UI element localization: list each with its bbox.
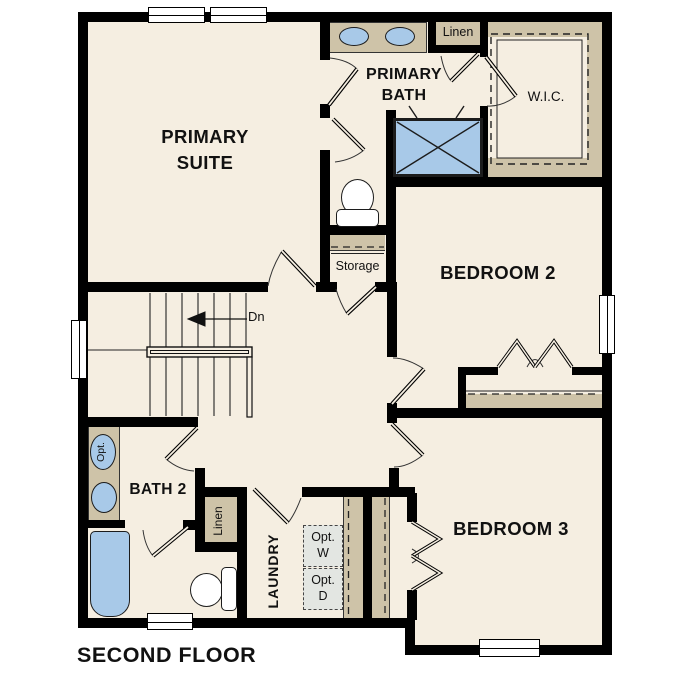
wall-bath2-mid-a: [86, 520, 125, 528]
wall-b2closet-top-a: [458, 367, 498, 375]
label-bath2: BATH 2: [122, 481, 194, 499]
wall-b3closet-right-a: [407, 493, 417, 522]
wall-suite-bottom: [86, 282, 268, 292]
floor-plan: Opt. W Opt. D: [0, 0, 687, 687]
toilet-tank-bath2: [221, 567, 237, 611]
wall-laundry-left: [237, 487, 247, 618]
optional-washer-box: Opt. W: [303, 525, 343, 567]
ext-wall-step: [405, 618, 415, 655]
label-primary-bath: PRIMARY BATH: [344, 64, 464, 106]
wall-b3closet-left: [363, 487, 372, 620]
laundry-counter: [343, 497, 363, 618]
toilet-tank-wc: [336, 209, 379, 227]
label-optional-sink: Opt.: [95, 437, 107, 467]
label-linen-bottom: Linen: [212, 491, 226, 551]
bath2-sink: [91, 482, 117, 513]
label-bedroom2: BEDROOM 2: [408, 262, 588, 283]
bath-sink: [339, 27, 369, 46]
wall-suite-bottom-b: [316, 282, 337, 292]
wall-linen-top-bottom: [428, 45, 488, 53]
wall-wc-left-a: [320, 104, 330, 118]
wall-stairs-bottom: [86, 417, 198, 427]
optional-dryer-box: Opt. D: [303, 568, 343, 610]
window-mullion: [148, 622, 192, 623]
wall-bath2-right: [195, 468, 205, 552]
label-primary-suite: PRIMARY SUITE: [119, 124, 291, 176]
wall-b2closet-top-b: [572, 367, 602, 375]
window-mullion: [79, 321, 80, 378]
wall-suite-bath-upper: [320, 12, 330, 60]
shower: [393, 118, 483, 177]
wall-b3closet-right-b: [407, 590, 417, 620]
page-title: SECOND FLOOR: [77, 643, 317, 668]
label-laundry: LAUNDRY: [265, 521, 281, 621]
storage-shelf: [330, 235, 385, 251]
wall-laundry-top: [302, 487, 415, 497]
label-stairs-dn: Dn: [248, 310, 278, 325]
window-right-bedroom2: [599, 295, 615, 354]
wall-bedroom2-bottom: [387, 408, 612, 418]
bedroom2-closet-shelf: [466, 394, 602, 408]
window-mullion: [607, 296, 608, 353]
toilet-bowl-bath2: [190, 573, 223, 607]
wall-suite-bottom-c: [375, 282, 397, 292]
bathtub: [90, 531, 130, 617]
label-bedroom3: BEDROOM 3: [421, 518, 601, 539]
wic-shelf-top: [488, 22, 602, 37]
window-bottom-bedroom3: [479, 639, 540, 657]
wic-shelf-bottom: [488, 158, 602, 177]
wall-wic-left-upper: [480, 12, 488, 57]
label-wic: W.I.C.: [516, 89, 576, 105]
window-left-stairs: [71, 320, 87, 379]
wic-shelf-right: [587, 37, 602, 177]
wall-bedroom2-top: [386, 177, 486, 187]
wall-hall-bedroom2: [387, 292, 397, 357]
window-bottom-bath2: [147, 613, 193, 630]
window-mullion: [211, 15, 266, 16]
window-mullion: [480, 648, 539, 649]
bedroom3-closet-shelf: [372, 495, 390, 618]
label-storage: Storage: [329, 259, 386, 273]
wall-wic-bottom: [480, 177, 612, 187]
window-top-2: [210, 7, 267, 23]
label-linen-top: Linen: [436, 25, 480, 39]
window-mullion: [149, 15, 204, 16]
window-top-1: [148, 7, 205, 23]
bath-sink: [385, 27, 415, 46]
